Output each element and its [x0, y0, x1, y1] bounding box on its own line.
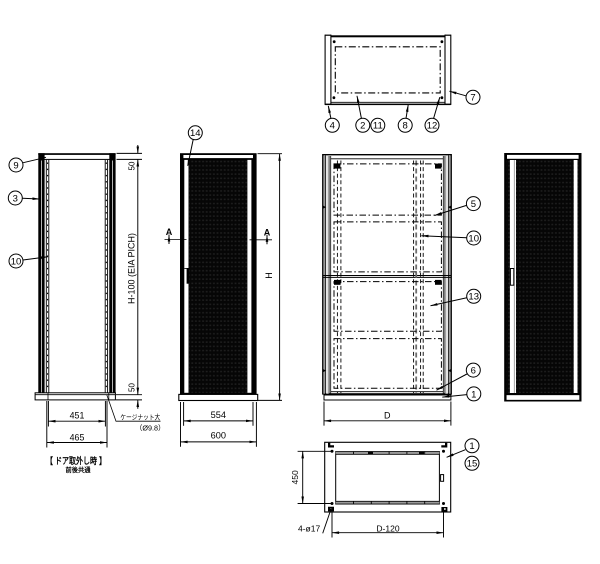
svg-text:10: 10: [11, 256, 22, 267]
svg-text:1: 1: [471, 389, 476, 400]
svg-text:4: 4: [330, 121, 335, 132]
svg-text:H-100 (EIA PICH): H-100 (EIA PICH): [127, 233, 137, 304]
svg-text:6: 6: [471, 366, 476, 377]
svg-text:2: 2: [360, 121, 365, 132]
svg-text:3: 3: [13, 193, 18, 204]
svg-text:【 ドア取外し時 】: 【 ドア取外し時 】: [46, 455, 106, 466]
svg-text:450: 450: [290, 470, 300, 484]
svg-text:15: 15: [467, 459, 478, 470]
svg-text:10: 10: [468, 233, 479, 244]
svg-text:H: H: [264, 272, 274, 279]
svg-text:451: 451: [70, 411, 85, 421]
svg-text:1: 1: [469, 441, 474, 452]
svg-text:465: 465: [70, 432, 85, 442]
svg-text:554: 554: [211, 410, 226, 420]
svg-text:5: 5: [471, 199, 476, 210]
svg-text:（Ø9.8）: （Ø9.8）: [135, 424, 165, 433]
svg-text:12: 12: [427, 121, 438, 132]
svg-text:D: D: [384, 411, 391, 421]
svg-text:8: 8: [403, 121, 408, 132]
svg-text:50: 50: [127, 383, 136, 392]
svg-text:14: 14: [190, 128, 201, 139]
svg-text:4-ø17: 4-ø17: [298, 523, 320, 533]
svg-text:50: 50: [127, 161, 136, 170]
svg-text:D-120: D-120: [376, 523, 399, 533]
svg-text:13: 13: [468, 292, 479, 303]
svg-text:前後共通: 前後共通: [66, 465, 92, 474]
svg-text:11: 11: [373, 121, 383, 132]
svg-text:ケージナット大: ケージナット大: [120, 412, 160, 421]
svg-text:600: 600: [211, 431, 226, 441]
svg-text:9: 9: [13, 160, 18, 171]
svg-text:7: 7: [470, 93, 475, 104]
